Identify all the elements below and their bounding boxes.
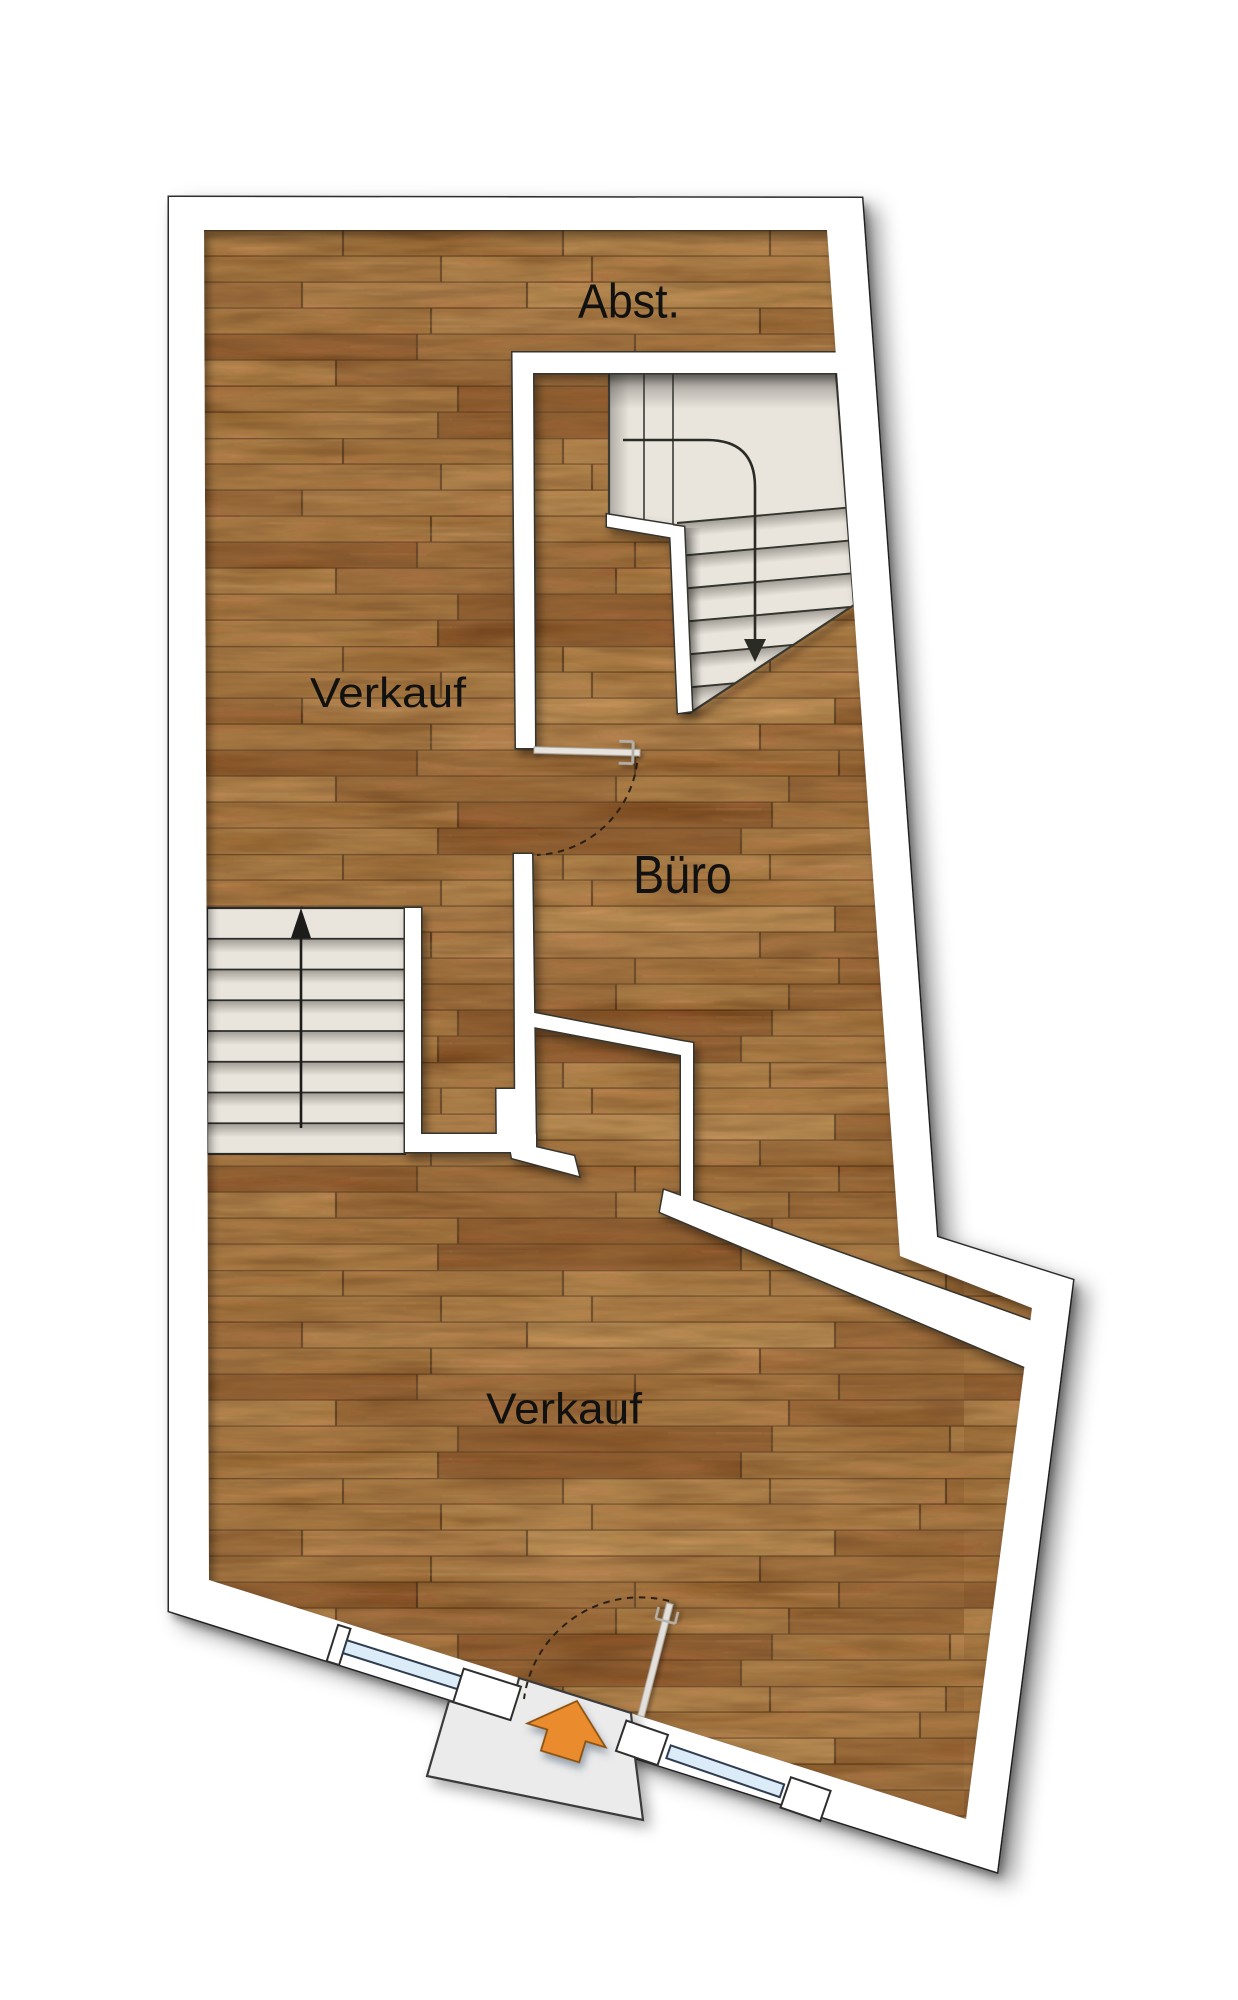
svg-text:Abst.: Abst.	[578, 275, 680, 329]
svg-text:Verkauf: Verkauf	[310, 669, 466, 716]
svg-text:Büro: Büro	[633, 845, 732, 905]
svg-text:Verkauf: Verkauf	[486, 1385, 643, 1434]
